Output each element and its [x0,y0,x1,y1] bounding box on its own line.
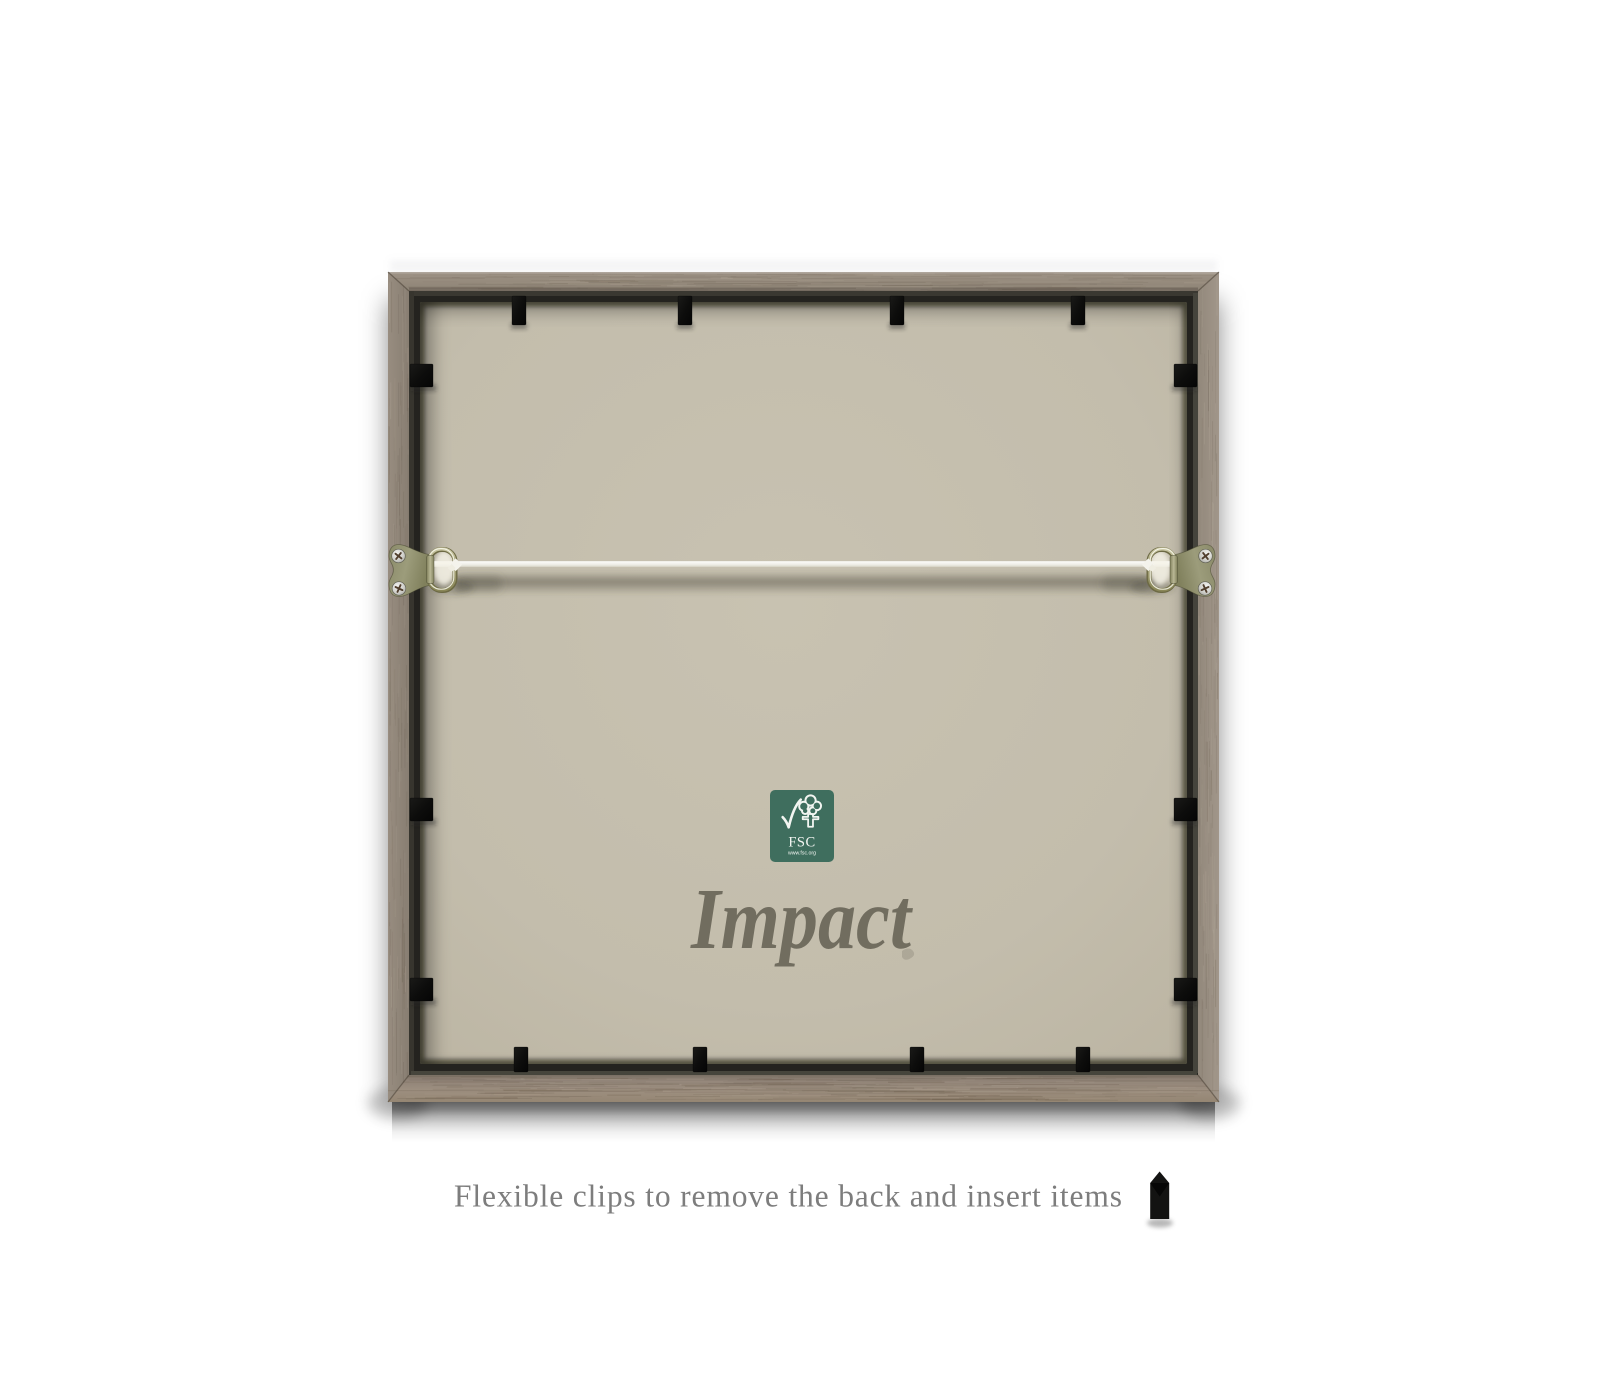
svg-text:Flexible clips to remove the b: Flexible clips to remove the back and in… [454,1179,1122,1214]
svg-text:FSC: FSC [788,835,815,851]
svg-text:www.fsc.org: www.fsc.org [788,851,816,857]
svg-text:Impact: Impact [690,870,913,967]
